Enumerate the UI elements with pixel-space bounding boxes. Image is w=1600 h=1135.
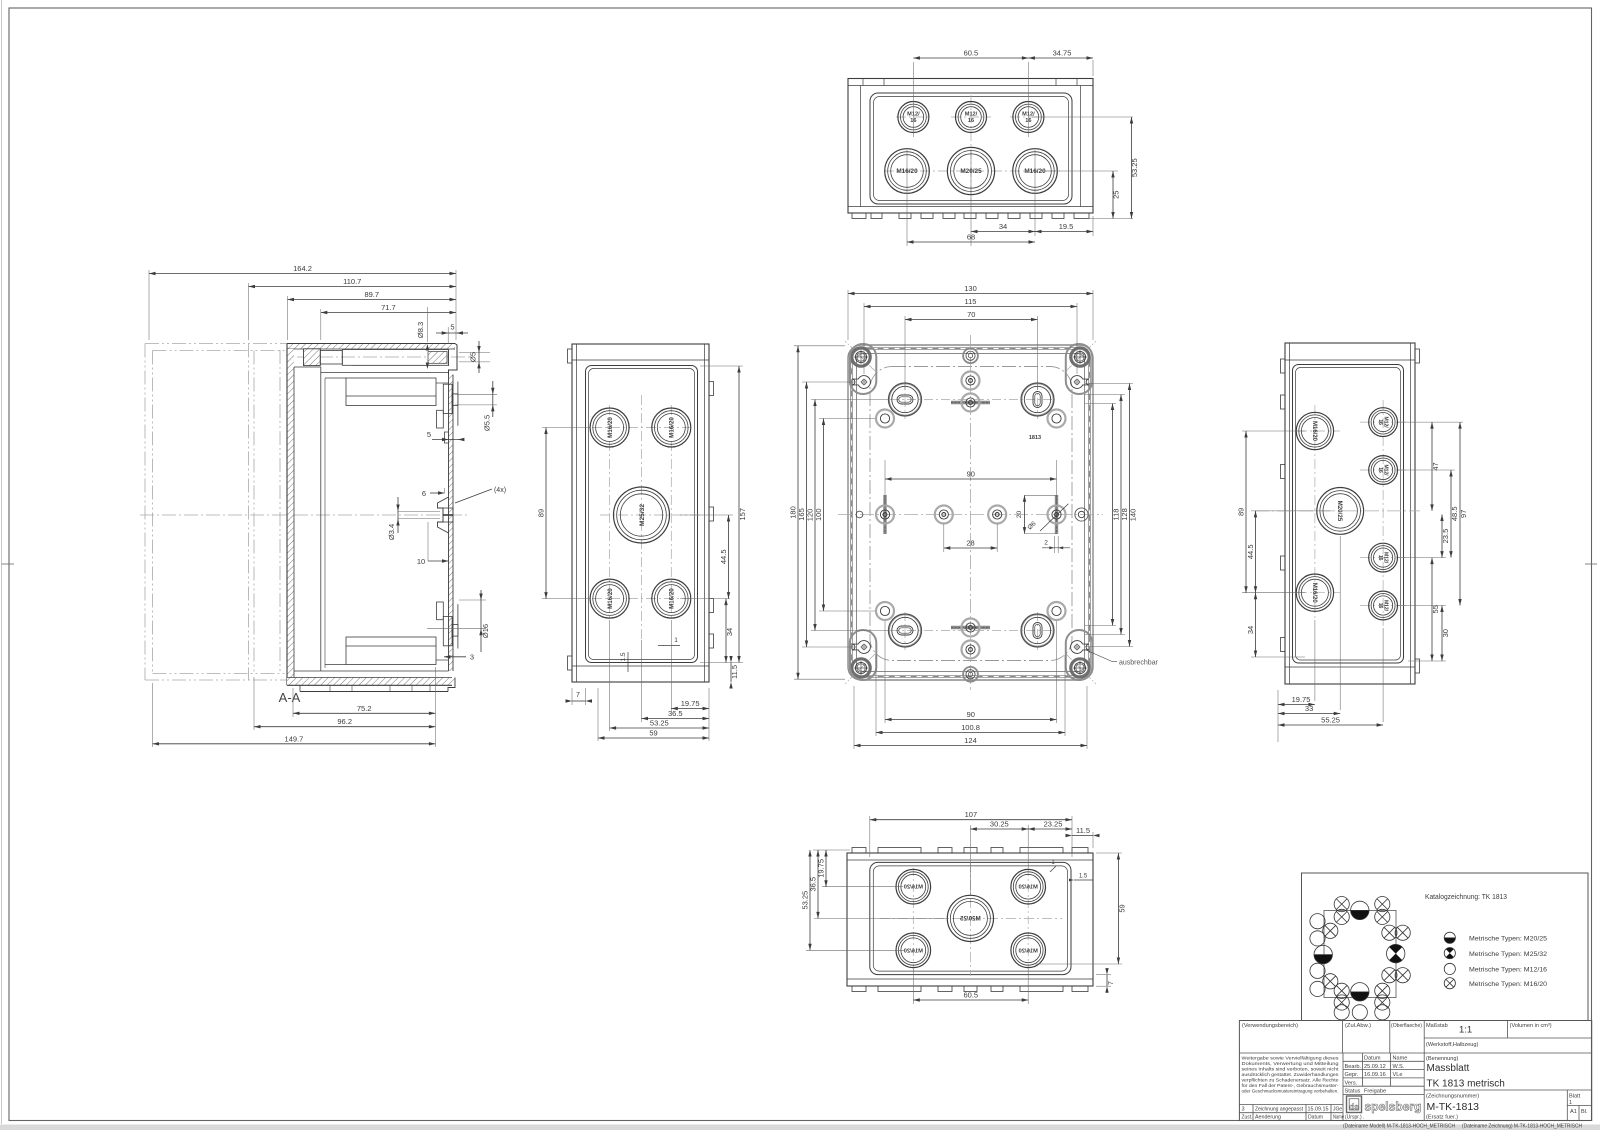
svg-text:23.25: 23.25 xyxy=(1044,820,1063,829)
svg-text:(Dateiname Modell) M-TK-1813-H: (Dateiname Modell) M-TK-1813-HOCH_METRIS… xyxy=(1343,1124,1455,1130)
svg-text:34: 34 xyxy=(1246,626,1255,634)
svg-text:7: 7 xyxy=(1108,981,1115,985)
svg-text:16: 16 xyxy=(1377,555,1383,561)
svg-text:89: 89 xyxy=(537,509,546,517)
svg-text:(Volumen in cm³): (Volumen in cm³) xyxy=(1510,1023,1552,1029)
svg-text:M16/20: M16/20 xyxy=(1311,583,1317,604)
svg-text:6: 6 xyxy=(422,489,426,498)
svg-text:19.75: 19.75 xyxy=(817,859,826,878)
svg-text:(Benennung): (Benennung) xyxy=(1426,1056,1458,1062)
svg-text:M-TK-1813: M-TK-1813 xyxy=(1427,1101,1480,1113)
svg-text:34: 34 xyxy=(999,222,1007,231)
svg-text:16: 16 xyxy=(1377,467,1383,473)
svg-text:Name: Name xyxy=(1393,1056,1408,1062)
svg-text:19.75: 19.75 xyxy=(681,699,700,708)
svg-text:Metrische Typen: M16/20: Metrische Typen: M16/20 xyxy=(1469,981,1547,988)
svg-text:15.09.15: 15.09.15 xyxy=(1308,1107,1329,1113)
svg-text:M16/20: M16/20 xyxy=(1019,885,1038,891)
svg-text:53.25: 53.25 xyxy=(801,891,810,910)
svg-text:Bearb.: Bearb. xyxy=(1345,1064,1362,1070)
svg-text:55: 55 xyxy=(1431,605,1440,613)
svg-text:60.5: 60.5 xyxy=(963,991,978,1000)
svg-text:89.7: 89.7 xyxy=(364,290,379,299)
svg-text:5: 5 xyxy=(450,323,454,332)
svg-text:oder Geschmacksmustereintragun: oder Geschmacksmustereintragung vorbehal… xyxy=(1242,1089,1339,1095)
svg-text:23.5: 23.5 xyxy=(1441,529,1450,544)
svg-text:Aenderung: Aenderung xyxy=(1255,1115,1281,1121)
svg-text:Datum: Datum xyxy=(1364,1056,1381,1062)
svg-text:1: 1 xyxy=(674,637,678,644)
svg-text:124: 124 xyxy=(964,736,977,745)
svg-text:34.75: 34.75 xyxy=(1053,49,1072,58)
svg-text:100: 100 xyxy=(814,508,823,521)
svg-text:96.2: 96.2 xyxy=(337,717,352,726)
svg-text:(4x): (4x) xyxy=(494,487,506,494)
svg-text:3: 3 xyxy=(1242,1107,1245,1113)
svg-text:140: 140 xyxy=(1129,509,1138,522)
svg-text:(Ersatz fuer.): (Ersatz fuer.) xyxy=(1426,1115,1458,1121)
svg-text:M16/20: M16/20 xyxy=(607,417,614,438)
svg-text:59: 59 xyxy=(1117,904,1126,912)
svg-text:seines Inhalts sind verboten,: seines Inhalts sind verboten, soweit nic… xyxy=(1242,1067,1340,1073)
svg-text:44.5: 44.5 xyxy=(719,549,728,564)
svg-text:Vers.: Vers. xyxy=(1345,1080,1358,1086)
svg-text:16.09.16: 16.09.16 xyxy=(1364,1072,1386,1078)
svg-text:VLe: VLe xyxy=(1393,1072,1403,1078)
svg-text:M16/20: M16/20 xyxy=(607,588,614,609)
svg-text:ds: ds xyxy=(1349,1103,1359,1112)
svg-text:Ø16: Ø16 xyxy=(481,624,490,638)
svg-text:Name: Name xyxy=(1333,1115,1344,1121)
svg-text:(Werkstoff,Halbzeug): (Werkstoff,Halbzeug) xyxy=(1426,1042,1478,1048)
svg-text:Gepr.: Gepr. xyxy=(1345,1072,1359,1078)
svg-text:Bl.: Bl. xyxy=(1581,1109,1588,1115)
svg-text:Zust.: Zust. xyxy=(1242,1115,1253,1121)
svg-text:30: 30 xyxy=(1441,629,1450,637)
svg-text:1:1: 1:1 xyxy=(1459,1025,1472,1036)
svg-text:53.25: 53.25 xyxy=(1130,158,1139,177)
svg-text:M25/32: M25/32 xyxy=(639,504,646,526)
svg-text:Massblatt: Massblatt xyxy=(1427,1063,1470,1074)
svg-text:5: 5 xyxy=(427,430,431,439)
svg-text:verpflichten zu Schadenersatz.: verpflichten zu Schadenersatz. Alle Rech… xyxy=(1242,1078,1339,1084)
svg-text:34: 34 xyxy=(725,628,734,636)
svg-text:TK 1813 metrisch: TK 1813 metrisch xyxy=(1427,1079,1505,1090)
svg-text:Maßstab: Maßstab xyxy=(1426,1023,1448,1029)
svg-text:47: 47 xyxy=(1431,462,1440,470)
svg-text:53.25: 53.25 xyxy=(650,719,669,728)
svg-text:Blatt: Blatt xyxy=(1569,1094,1581,1100)
svg-text:19.75: 19.75 xyxy=(1292,695,1311,704)
svg-text:ausbrechbar: ausbrechbar xyxy=(1119,660,1159,667)
svg-text:33: 33 xyxy=(1305,704,1313,713)
svg-text:Metrische Typen: M12/16: Metrische Typen: M12/16 xyxy=(1469,967,1547,974)
svg-text:25.09.12: 25.09.12 xyxy=(1364,1064,1386,1070)
svg-text:Freigabe: Freigabe xyxy=(1364,1089,1386,1095)
svg-text:Dokuments, Verwertung und Mitt: Dokuments, Verwertung und Mitteilung xyxy=(1242,1061,1339,1067)
svg-text:16: 16 xyxy=(1377,603,1383,609)
svg-text:55.25: 55.25 xyxy=(1321,716,1340,725)
svg-text:1.5: 1.5 xyxy=(1079,874,1088,880)
svg-text:M20/25: M20/25 xyxy=(960,916,981,923)
svg-text:Status: Status xyxy=(1345,1089,1361,1095)
svg-text:(Zul.Abw.): (Zul.Abw.) xyxy=(1345,1023,1371,1029)
svg-text:Zeichnung angepasst: Zeichnung angepasst xyxy=(1255,1107,1304,1113)
svg-text:M16/20: M16/20 xyxy=(1019,948,1038,954)
svg-text:20: 20 xyxy=(1016,511,1023,519)
svg-text:Metrische Typen: M20/25: Metrische Typen: M20/25 xyxy=(1469,936,1547,943)
svg-text:107: 107 xyxy=(965,810,978,819)
svg-text:2: 2 xyxy=(1044,540,1048,547)
svg-text:W.S.: W.S. xyxy=(1393,1064,1405,1070)
svg-text:59: 59 xyxy=(649,729,657,738)
svg-text:48.5: 48.5 xyxy=(1450,506,1459,521)
svg-text:Ø5.5: Ø5.5 xyxy=(483,415,492,431)
svg-text:1: 1 xyxy=(1569,1100,1572,1106)
svg-text:Datum: Datum xyxy=(1308,1115,1323,1121)
svg-text:164.2: 164.2 xyxy=(293,264,312,273)
svg-text:100.8: 100.8 xyxy=(961,723,980,732)
svg-text:36.5: 36.5 xyxy=(809,877,818,892)
svg-text:Ø3.4: Ø3.4 xyxy=(387,524,396,540)
svg-text:ausdrücklich gestattet. Zuwide: ausdrücklich gestattet. Zuwiderhandlunge… xyxy=(1242,1072,1339,1078)
svg-text:M16/20: M16/20 xyxy=(668,417,675,438)
svg-text:70: 70 xyxy=(967,310,975,319)
svg-text:75.2: 75.2 xyxy=(357,704,372,713)
svg-text:11.5: 11.5 xyxy=(1076,826,1090,835)
svg-text:Metrische Typen: M25/32: Metrische Typen: M25/32 xyxy=(1469,951,1547,958)
svg-text:für den Fall der Patent-, Gebr: für den Fall der Patent-, Gebrauchsmuste… xyxy=(1242,1083,1339,1089)
svg-text:Katalogzeichnung: TK 1813: Katalogzeichnung: TK 1813 xyxy=(1425,892,1507,901)
svg-text:M16/20: M16/20 xyxy=(668,588,675,609)
svg-text:30.25: 30.25 xyxy=(990,820,1009,829)
svg-text:A1: A1 xyxy=(1570,1109,1577,1115)
svg-text:71.7: 71.7 xyxy=(381,303,396,312)
svg-text:90: 90 xyxy=(967,710,975,719)
svg-text:157: 157 xyxy=(738,508,747,521)
svg-text:10: 10 xyxy=(417,557,425,566)
svg-text:16: 16 xyxy=(1377,419,1383,425)
svg-text:149.7: 149.7 xyxy=(285,734,304,743)
svg-text:115: 115 xyxy=(965,297,977,306)
svg-text:Ø5: Ø5 xyxy=(469,352,478,362)
svg-text:68: 68 xyxy=(967,233,975,242)
svg-text:Weitergabe sowie Vervielfältig: Weitergabe sowie Vervielfältigung dieses xyxy=(1242,1056,1340,1062)
svg-text:(Verwendungsbereich): (Verwendungsbereich) xyxy=(1242,1023,1298,1029)
svg-text:M12/: M12/ xyxy=(965,112,978,118)
svg-text:90: 90 xyxy=(967,470,975,479)
svg-text:36.5: 36.5 xyxy=(668,709,683,718)
svg-text:M16/20: M16/20 xyxy=(1311,421,1317,442)
svg-text:(Zeichnungsnummer): (Zeichnungsnummer) xyxy=(1426,1094,1479,1100)
svg-text:60.5: 60.5 xyxy=(964,49,979,58)
svg-text:1813: 1813 xyxy=(1029,435,1041,441)
svg-text:44.5: 44.5 xyxy=(1246,544,1255,559)
svg-text:M20/25: M20/25 xyxy=(1336,501,1343,522)
svg-text:M16/20: M16/20 xyxy=(904,948,923,954)
svg-text:(Oberflaeche): (Oberflaeche) xyxy=(1391,1023,1422,1029)
svg-text:97: 97 xyxy=(1459,510,1468,518)
svg-text:3: 3 xyxy=(470,653,474,662)
svg-text:M16/20: M16/20 xyxy=(904,885,923,891)
svg-text:1.5: 1.5 xyxy=(620,652,627,661)
svg-text:89: 89 xyxy=(1237,508,1246,516)
svg-text:28: 28 xyxy=(966,539,974,548)
svg-text:19.5: 19.5 xyxy=(1059,222,1074,231)
svg-text:25: 25 xyxy=(1112,191,1121,199)
svg-text:(Dateiname Zeichnung) M-TK-181: (Dateiname Zeichnung) M-TK-1813-HOCH_MET… xyxy=(1462,1124,1582,1130)
svg-text:Ø8.3: Ø8.3 xyxy=(416,322,425,338)
svg-text:7: 7 xyxy=(576,692,580,699)
svg-text:11.5: 11.5 xyxy=(730,665,739,679)
svg-text:A-A: A-A xyxy=(279,690,301,705)
svg-text:spelsberg: spelsberg xyxy=(1365,1102,1422,1114)
svg-text:130: 130 xyxy=(964,284,977,293)
svg-text:(Urspr.) .: (Urspr.) . xyxy=(1345,1115,1364,1121)
svg-text:16: 16 xyxy=(968,118,974,124)
svg-text:JGe: JGe xyxy=(1333,1107,1342,1113)
svg-text:110.7: 110.7 xyxy=(343,277,361,286)
